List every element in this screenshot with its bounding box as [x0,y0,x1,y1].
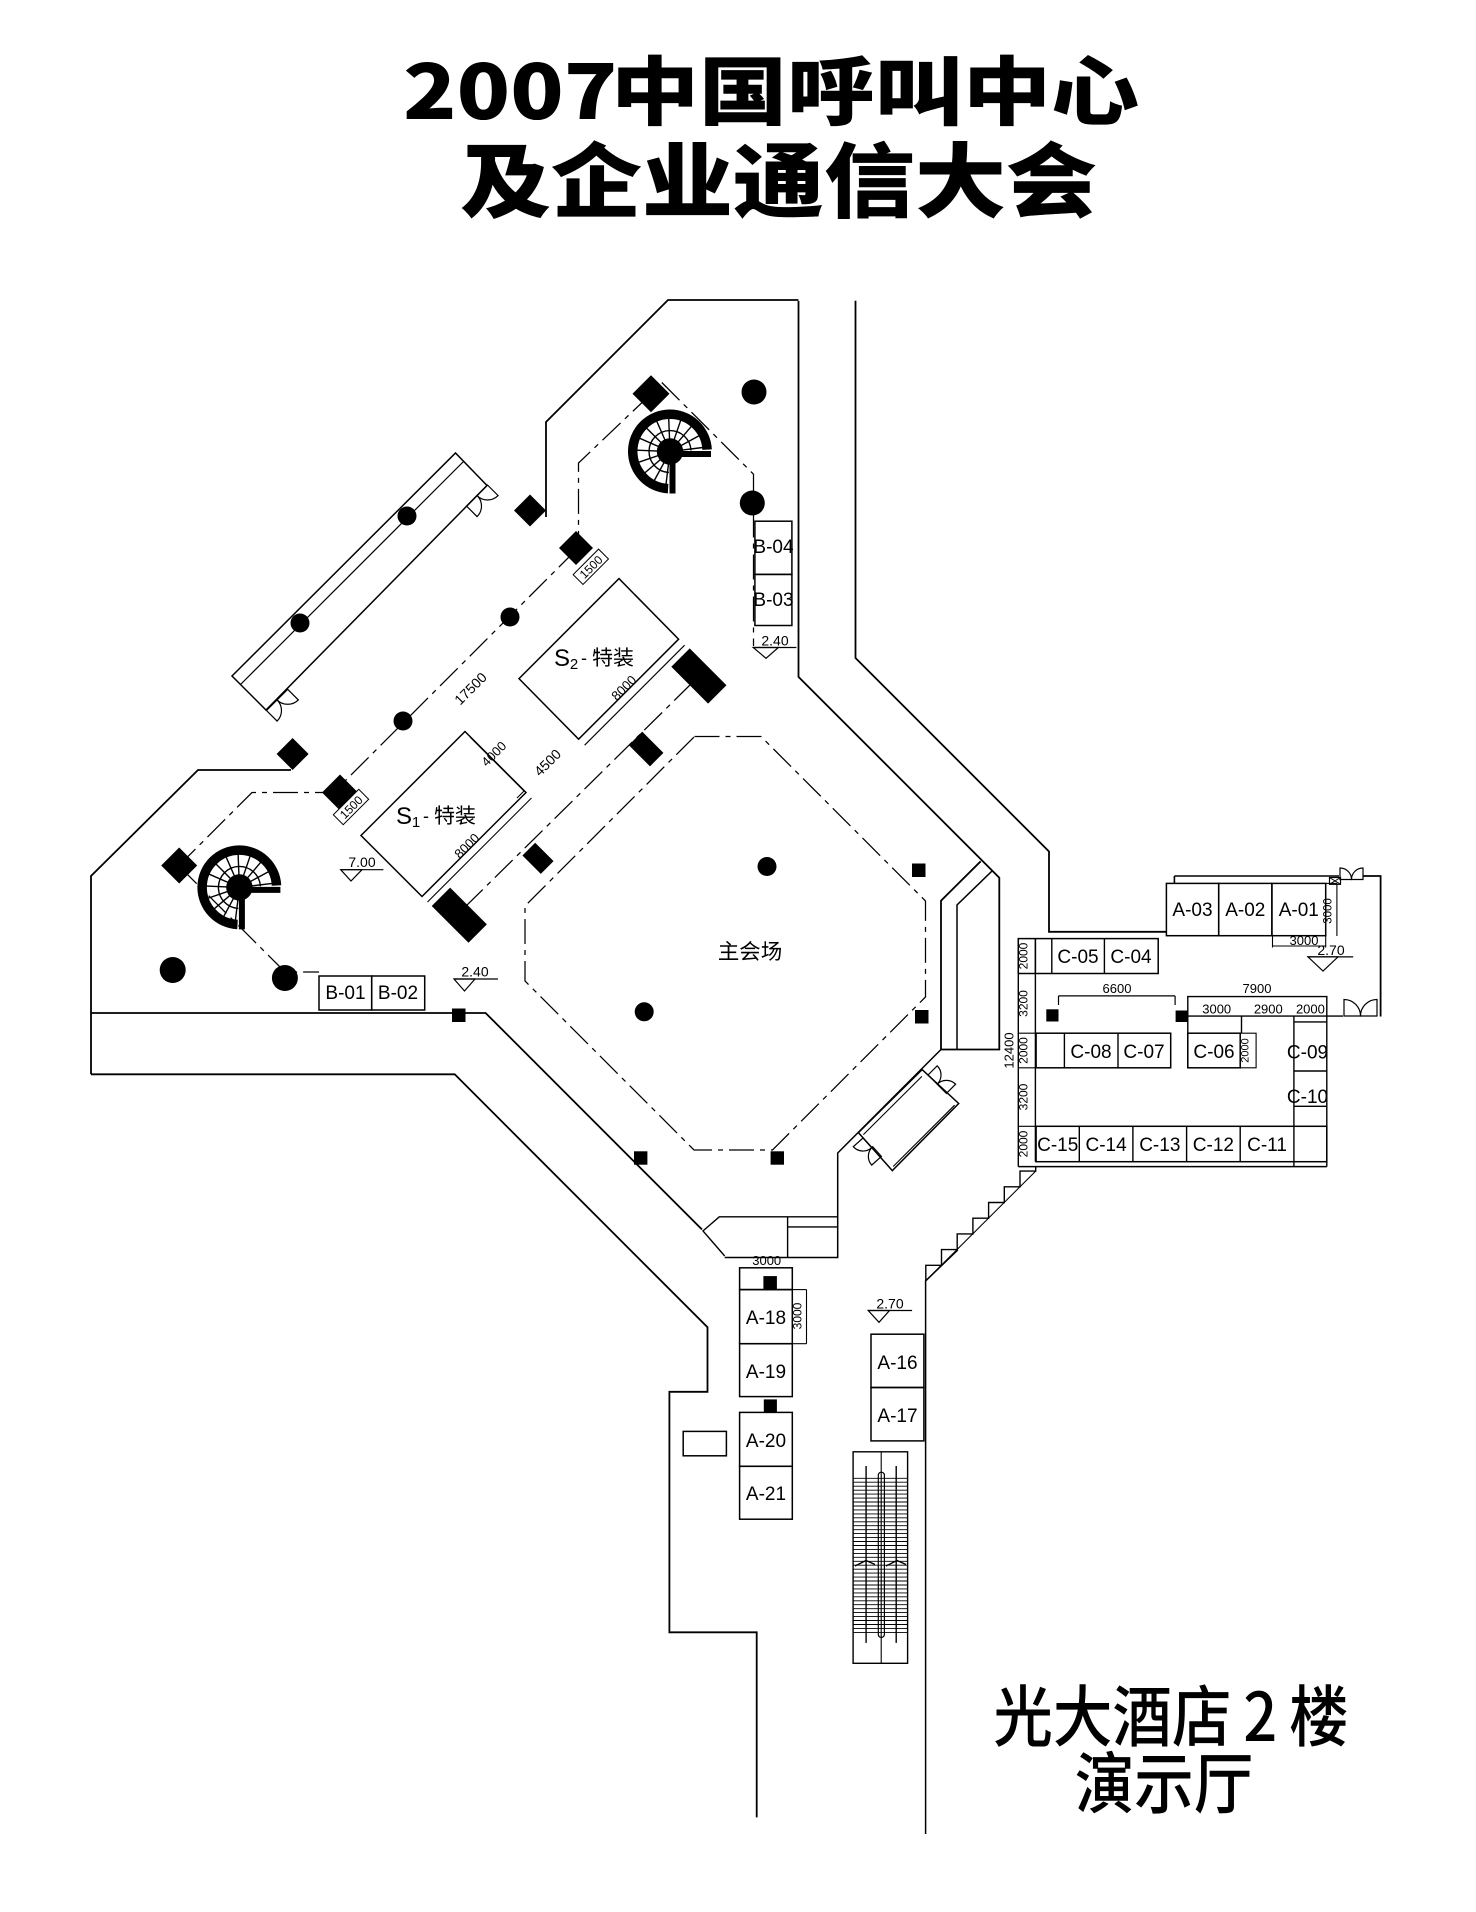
svg-text:2: 2 [570,656,578,673]
svg-text:3000: 3000 [1290,933,1319,948]
svg-text:6600: 6600 [1103,981,1132,996]
svg-text:A-16: A-16 [877,1353,917,1374]
svg-text:2.40: 2.40 [761,633,788,649]
svg-text:2.70: 2.70 [876,1296,903,1312]
svg-text:A-19: A-19 [746,1362,786,1383]
svg-text:1: 1 [412,814,420,831]
svg-text:2000: 2000 [1240,1038,1252,1062]
svg-text:3200: 3200 [1017,990,1031,1017]
svg-text:-: - [581,648,587,668]
svg-text:2.70: 2.70 [1317,942,1344,958]
svg-text:S: S [396,803,412,830]
svg-text:3000: 3000 [752,1253,781,1268]
svg-text:C-11: C-11 [1247,1135,1287,1156]
svg-text:3200: 3200 [1017,1083,1031,1110]
svg-text:C-05: C-05 [1057,947,1098,968]
svg-text:A-18: A-18 [746,1308,786,1329]
svg-text:C-04: C-04 [1110,947,1152,968]
svg-text:A-02: A-02 [1225,900,1265,921]
svg-text:C-10: C-10 [1287,1087,1328,1108]
svg-text:-: - [423,806,429,826]
svg-text:3000: 3000 [1323,898,1335,924]
svg-text:C-06: C-06 [1193,1042,1234,1063]
svg-text:2000: 2000 [1017,1130,1031,1157]
svg-text:12400: 12400 [1002,1032,1017,1068]
svg-text:B-03: B-03 [753,590,793,611]
svg-text:A-20: A-20 [746,1431,786,1452]
svg-text:B-01: B-01 [325,983,365,1004]
svg-text:B-02: B-02 [378,983,418,1004]
svg-text:S: S [554,645,570,672]
svg-text:2000: 2000 [1017,1037,1031,1064]
svg-text:A-21: A-21 [746,1484,786,1505]
svg-text:2.40: 2.40 [461,964,488,980]
svg-text:C-13: C-13 [1139,1135,1180,1156]
svg-text:A-01: A-01 [1279,900,1319,921]
svg-text:A-03: A-03 [1172,900,1212,921]
svg-text:C-15: C-15 [1037,1135,1078,1156]
svg-text:2900: 2900 [1254,1002,1283,1017]
svg-text:2000: 2000 [1296,1002,1325,1017]
svg-text:C-09: C-09 [1287,1043,1328,1064]
svg-text:3000: 3000 [1202,1002,1231,1017]
svg-text:C-14: C-14 [1086,1135,1128,1156]
svg-text:7.00: 7.00 [348,854,375,870]
svg-text:C-07: C-07 [1123,1042,1164,1063]
svg-text:A-17: A-17 [877,1406,917,1427]
svg-text:B-04: B-04 [753,537,794,558]
svg-text:7900: 7900 [1243,981,1272,996]
svg-text:3000: 3000 [791,1302,805,1329]
svg-text:C-12: C-12 [1193,1135,1234,1156]
svg-text:C-08: C-08 [1070,1042,1111,1063]
